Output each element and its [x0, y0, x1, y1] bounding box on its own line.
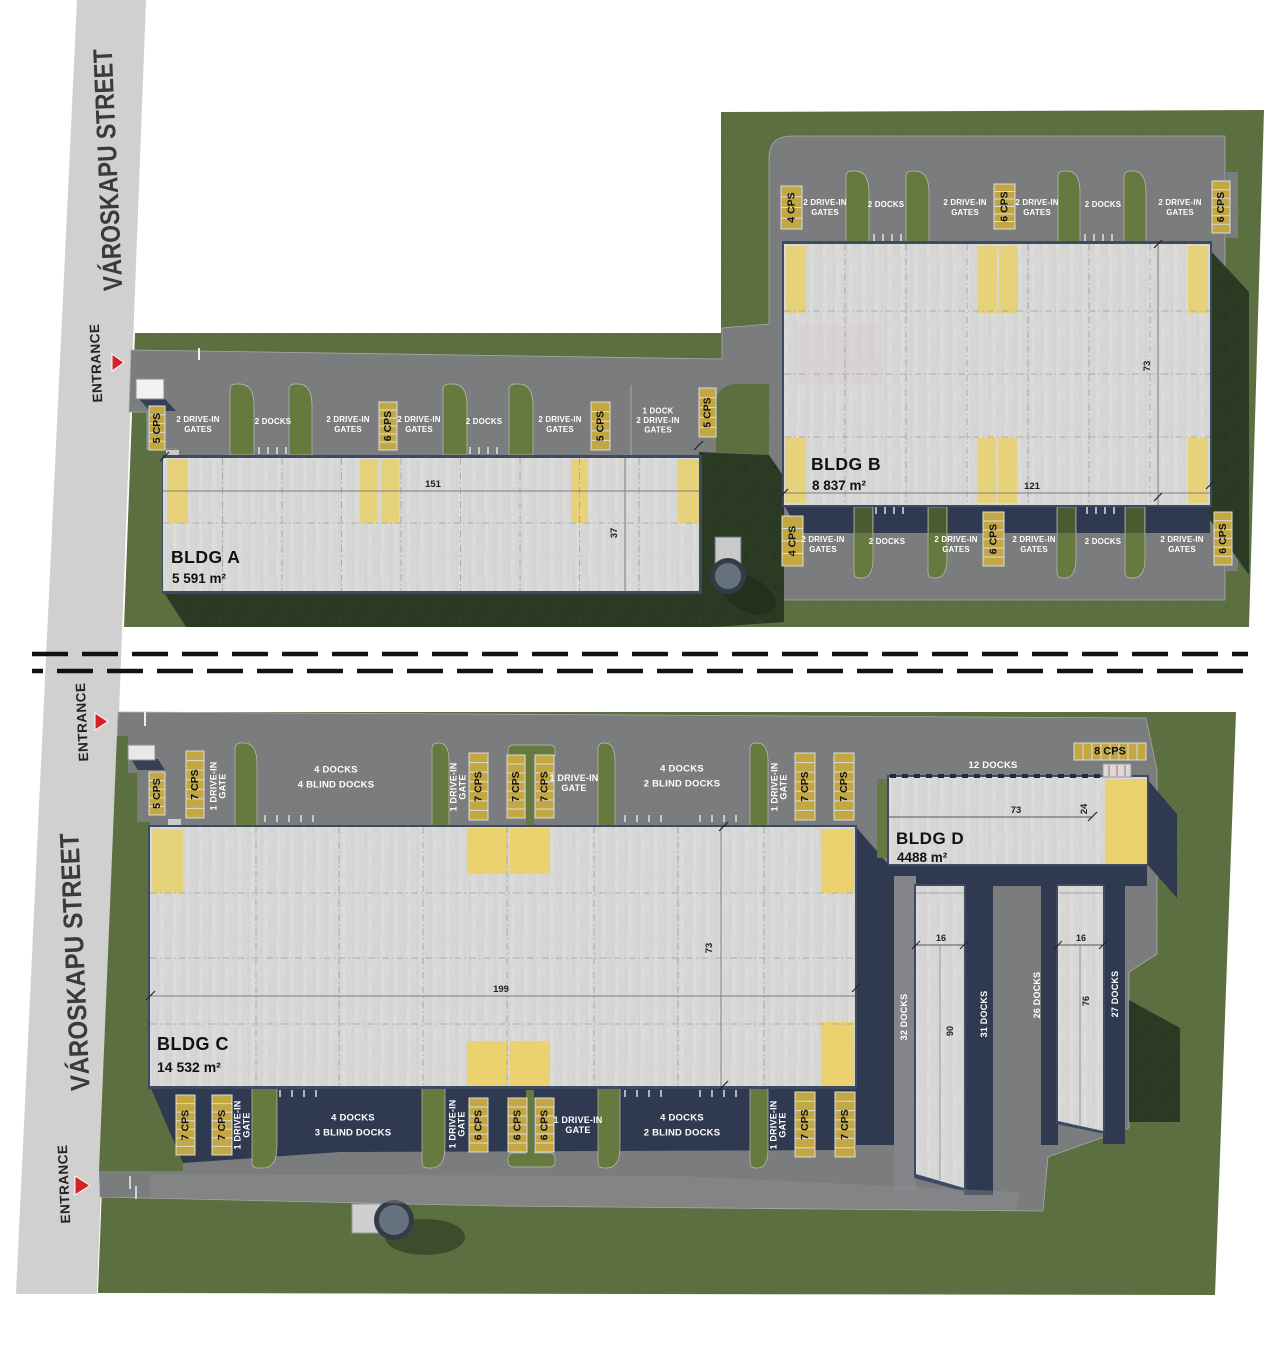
svg-text:73: 73: [1142, 361, 1153, 372]
svg-text:2 DOCKS: 2 DOCKS: [1085, 537, 1121, 546]
svg-text:BLDG A: BLDG A: [171, 547, 240, 567]
svg-text:6 CPS: 6 CPS: [539, 1110, 551, 1140]
svg-text:5 591 m²: 5 591 m²: [172, 571, 227, 586]
svg-text:7 CPS: 7 CPS: [216, 1110, 228, 1140]
svg-text:5 CPS: 5 CPS: [151, 413, 163, 443]
svg-text:6 CPS: 6 CPS: [1217, 523, 1229, 553]
svg-text:73: 73: [704, 943, 715, 954]
svg-text:2 DOCKS: 2 DOCKS: [869, 537, 905, 546]
svg-text:6 CPS: 6 CPS: [473, 1110, 485, 1140]
svg-text:32 DOCKS: 32 DOCKS: [899, 994, 909, 1041]
svg-text:8 CPS: 8 CPS: [1094, 746, 1126, 758]
svg-text:73: 73: [1011, 805, 1022, 816]
svg-text:2 DOCKS: 2 DOCKS: [466, 417, 502, 426]
svg-text:6 CPS: 6 CPS: [512, 1110, 524, 1140]
svg-text:14 532 m²: 14 532 m²: [157, 1059, 221, 1075]
svg-text:37: 37: [609, 528, 620, 539]
svg-text:6 CPS: 6 CPS: [382, 411, 394, 441]
svg-text:6 CPS: 6 CPS: [1215, 192, 1227, 222]
svg-text:7 CPS: 7 CPS: [180, 1110, 192, 1140]
svg-text:76: 76: [1081, 996, 1091, 1006]
svg-text:16: 16: [936, 933, 946, 943]
svg-text:7 CPS: 7 CPS: [189, 769, 201, 799]
svg-text:199: 199: [493, 984, 509, 995]
svg-text:7 CPS: 7 CPS: [510, 771, 522, 801]
svg-text:4 CPS: 4 CPS: [787, 526, 799, 556]
svg-text:151: 151: [425, 479, 442, 490]
svg-text:5 CPS: 5 CPS: [151, 778, 163, 808]
svg-text:7 CPS: 7 CPS: [799, 1109, 811, 1139]
svg-text:12 DOCKS: 12 DOCKS: [968, 760, 1017, 771]
svg-text:5 CPS: 5 CPS: [595, 411, 607, 441]
svg-text:BLDG C: BLDG C: [157, 1034, 229, 1054]
svg-text:2 DOCKS: 2 DOCKS: [1085, 200, 1121, 209]
svg-text:31 DOCKS: 31 DOCKS: [979, 991, 989, 1038]
svg-text:BLDG D: BLDG D: [896, 829, 964, 848]
svg-text:BLDG B: BLDG B: [811, 454, 881, 474]
svg-text:4 CPS: 4 CPS: [786, 192, 798, 222]
svg-text:4488 m²: 4488 m²: [897, 850, 948, 865]
svg-text:24: 24: [1079, 803, 1090, 814]
svg-text:6 CPS: 6 CPS: [988, 524, 1000, 554]
svg-text:27 DOCKS: 27 DOCKS: [1110, 971, 1120, 1018]
svg-text:7 CPS: 7 CPS: [839, 1109, 851, 1139]
svg-text:7 CPS: 7 CPS: [838, 771, 850, 801]
svg-text:7 CPS: 7 CPS: [473, 771, 485, 801]
svg-text:5 CPS: 5 CPS: [702, 397, 714, 427]
svg-text:2 DOCKS: 2 DOCKS: [255, 417, 291, 426]
svg-text:6 CPS: 6 CPS: [999, 191, 1011, 221]
svg-text:2 DOCKS: 2 DOCKS: [868, 200, 904, 209]
svg-text:16: 16: [1076, 933, 1086, 943]
svg-text:26 DOCKS: 26 DOCKS: [1032, 972, 1042, 1019]
svg-text:8 837 m²: 8 837 m²: [812, 478, 867, 493]
svg-text:121: 121: [1024, 481, 1041, 492]
svg-text:7 CPS: 7 CPS: [799, 771, 811, 801]
svg-text:90: 90: [945, 1026, 955, 1036]
